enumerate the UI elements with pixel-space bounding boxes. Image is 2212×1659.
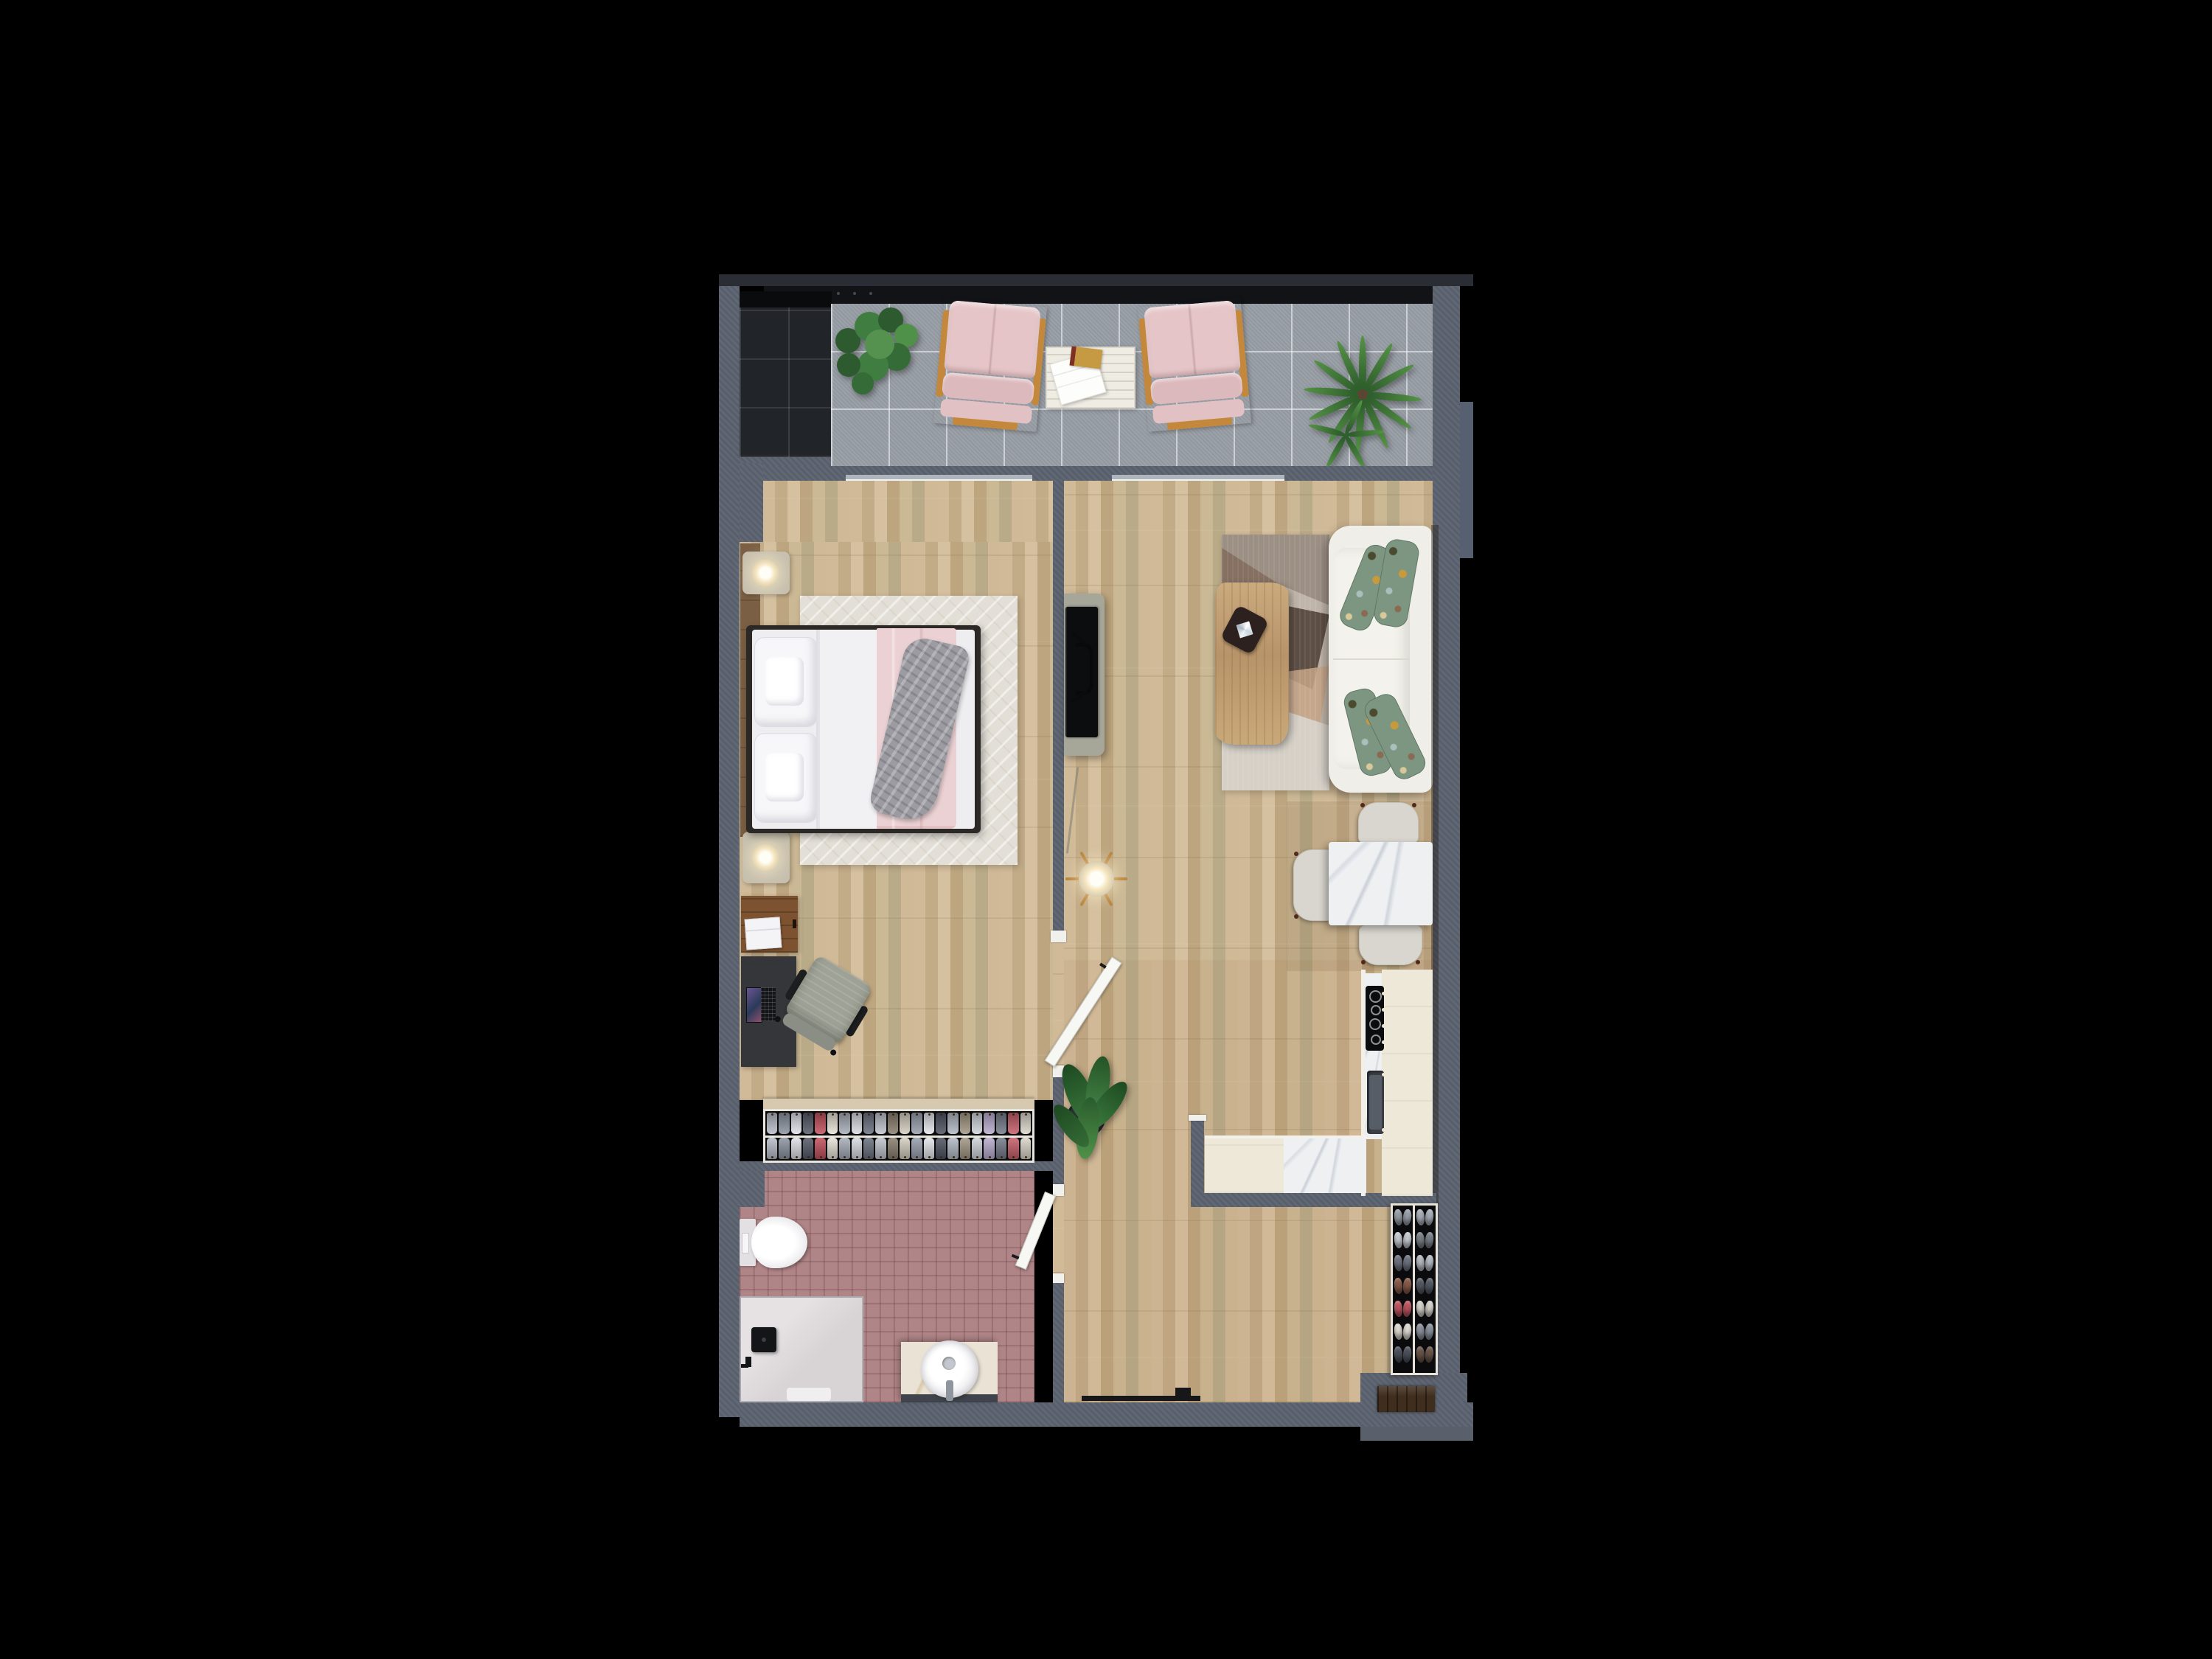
wall-bottom [740, 1402, 1473, 1427]
dining-chair-bottom [1359, 925, 1422, 965]
lounge-chair-right [1138, 298, 1251, 432]
screenshot-canvas: { "scene": { "title": "apartment-floor-p… [0, 0, 2212, 1659]
hanging-garment [779, 1113, 789, 1134]
wall-left [719, 274, 740, 1417]
shoe-pair [1394, 1344, 1412, 1366]
wall-balcony-band [740, 466, 1433, 481]
pendant-lamp [1052, 835, 1141, 923]
tv-bracket [1076, 643, 1093, 695]
bed-pillow [754, 733, 818, 823]
hanging-garment [815, 1138, 825, 1159]
hanging-garment [936, 1138, 946, 1159]
nightstand-lamp-bottom [751, 843, 780, 872]
hanging-garment [779, 1138, 789, 1159]
hanging-garment [839, 1138, 849, 1159]
kitchen-wall-cap [1189, 1115, 1206, 1121]
floor-plan [719, 274, 1473, 1440]
hanging-garment [852, 1113, 862, 1134]
shoe-pair [1416, 1344, 1434, 1366]
hanging-garment [984, 1138, 994, 1159]
shoe-pair [1416, 1321, 1434, 1343]
shoe-pair [1416, 1230, 1434, 1251]
hanging-garment [972, 1138, 982, 1159]
kitchen-sink [1367, 1071, 1384, 1134]
vanity-faucet [946, 1380, 953, 1401]
jamb-bedroom-door-top [1051, 931, 1066, 942]
cooktop-knob [1382, 1008, 1385, 1012]
hanging-garment [888, 1138, 898, 1159]
hanging-garment [936, 1113, 946, 1134]
hanging-garment [803, 1138, 813, 1159]
shower-head [751, 1327, 776, 1352]
wall-right-step [1460, 402, 1473, 558]
cooktop-knob [1382, 1040, 1385, 1044]
shoe-rack-column-right [1415, 1206, 1435, 1373]
laptop [746, 987, 776, 1021]
shoe-pair [1416, 1276, 1434, 1297]
hanging-garment [827, 1138, 838, 1159]
hanging-garment [1008, 1138, 1018, 1159]
dining-chair-left [1293, 849, 1333, 921]
hanging-garment [1020, 1113, 1031, 1134]
floor-threshold-vent [1082, 1396, 1200, 1401]
cooktop-knob [1382, 1024, 1385, 1028]
wall-bedroom-top-left-chunk [740, 463, 763, 546]
hall-plant [1054, 1056, 1135, 1159]
kitchen-arm-counter [1284, 1138, 1366, 1193]
hanging-garment [900, 1113, 910, 1134]
wardrobe-top-panel [763, 1099, 1034, 1109]
hanging-garment [888, 1113, 898, 1134]
railing-post [837, 292, 840, 295]
bed-pillow [754, 637, 818, 727]
hanging-garment [924, 1138, 934, 1159]
lounge-chair-left [933, 298, 1047, 432]
hanging-garment [767, 1138, 777, 1159]
hanging-garment [900, 1138, 910, 1159]
railing-post [853, 292, 856, 295]
toilet [740, 1217, 807, 1268]
hanging-garment [839, 1113, 849, 1134]
wall-top-edge [719, 274, 1473, 286]
wardrobe-rail-top [767, 1113, 1031, 1135]
kitchen-arm-cabinet [1205, 1138, 1284, 1193]
shoe-pair [1394, 1321, 1412, 1343]
doorway-floor-bathroom [1053, 1196, 1064, 1273]
wardrobe [763, 1109, 1034, 1163]
hanging-garment [996, 1113, 1006, 1134]
hanging-garment [827, 1113, 838, 1134]
hanging-garment [791, 1113, 801, 1134]
floor-threshold-notch [1175, 1388, 1191, 1396]
shoe-pair [1394, 1298, 1412, 1320]
shoe-rack-column-left [1393, 1206, 1413, 1373]
book-stack [1070, 347, 1103, 369]
sink-faucet-dot [1382, 1128, 1385, 1132]
fiddle-leaf-plant [829, 307, 929, 403]
shoe-pair [1416, 1207, 1434, 1228]
shoe-pair [1394, 1230, 1412, 1251]
hanging-garment [960, 1113, 970, 1134]
coffee-table [1215, 582, 1289, 745]
bedroom-floor-upper [763, 481, 1053, 543]
wall-bottom-step [1360, 1427, 1473, 1441]
wall-bathroom-right [1053, 1283, 1064, 1402]
hanging-garment [875, 1113, 886, 1134]
hanging-garment [924, 1113, 934, 1134]
palm-plant [1300, 332, 1425, 461]
hanging-garment [960, 1138, 970, 1159]
shoe-pair [1416, 1298, 1434, 1320]
dresser-books [745, 917, 782, 950]
hanging-garment [875, 1138, 886, 1159]
hanging-garment [791, 1138, 801, 1159]
shoe-rack [1391, 1203, 1438, 1375]
hanging-garment [972, 1113, 982, 1134]
hanging-garment [863, 1113, 874, 1134]
dining-chair-top [1358, 802, 1419, 844]
hanging-garment [863, 1138, 874, 1159]
hanging-garment [911, 1138, 922, 1159]
hanging-garment [767, 1113, 777, 1134]
cooktop-knob [1382, 992, 1385, 995]
shoe-pair [1394, 1276, 1412, 1297]
hanging-garment [815, 1113, 825, 1134]
jamb-bathroom-door-top [1053, 1184, 1064, 1196]
balcony-dark-canopy [740, 291, 832, 307]
kitchen-cabinet-run [1382, 970, 1433, 1196]
wall-bathroom-left-chunk [740, 1171, 765, 1207]
shoe-pair [1394, 1207, 1412, 1228]
hanging-garment [996, 1138, 1006, 1159]
shower-handle [741, 1364, 748, 1368]
hanging-garment [1008, 1113, 1018, 1134]
hanging-garment [852, 1138, 862, 1159]
sink-faucet-dot [1382, 1073, 1385, 1077]
hanging-garment [947, 1113, 958, 1134]
entrance-door [1377, 1386, 1435, 1412]
balcony-dark-tiles [740, 307, 832, 457]
hanging-garment [947, 1138, 958, 1159]
railing-post [869, 292, 872, 295]
dining-table [1329, 842, 1433, 925]
hanging-garment [1020, 1138, 1031, 1159]
hanging-garment [803, 1113, 813, 1134]
hanging-garment [984, 1113, 994, 1134]
wardrobe-rail-bottom [767, 1137, 1031, 1159]
shoe-pair [1416, 1253, 1434, 1274]
shoe-pair [1394, 1253, 1412, 1274]
nightstand-lamp-top [751, 558, 780, 588]
hanging-garment [911, 1113, 922, 1134]
jamb-bathroom-door-bottom [1053, 1273, 1064, 1283]
